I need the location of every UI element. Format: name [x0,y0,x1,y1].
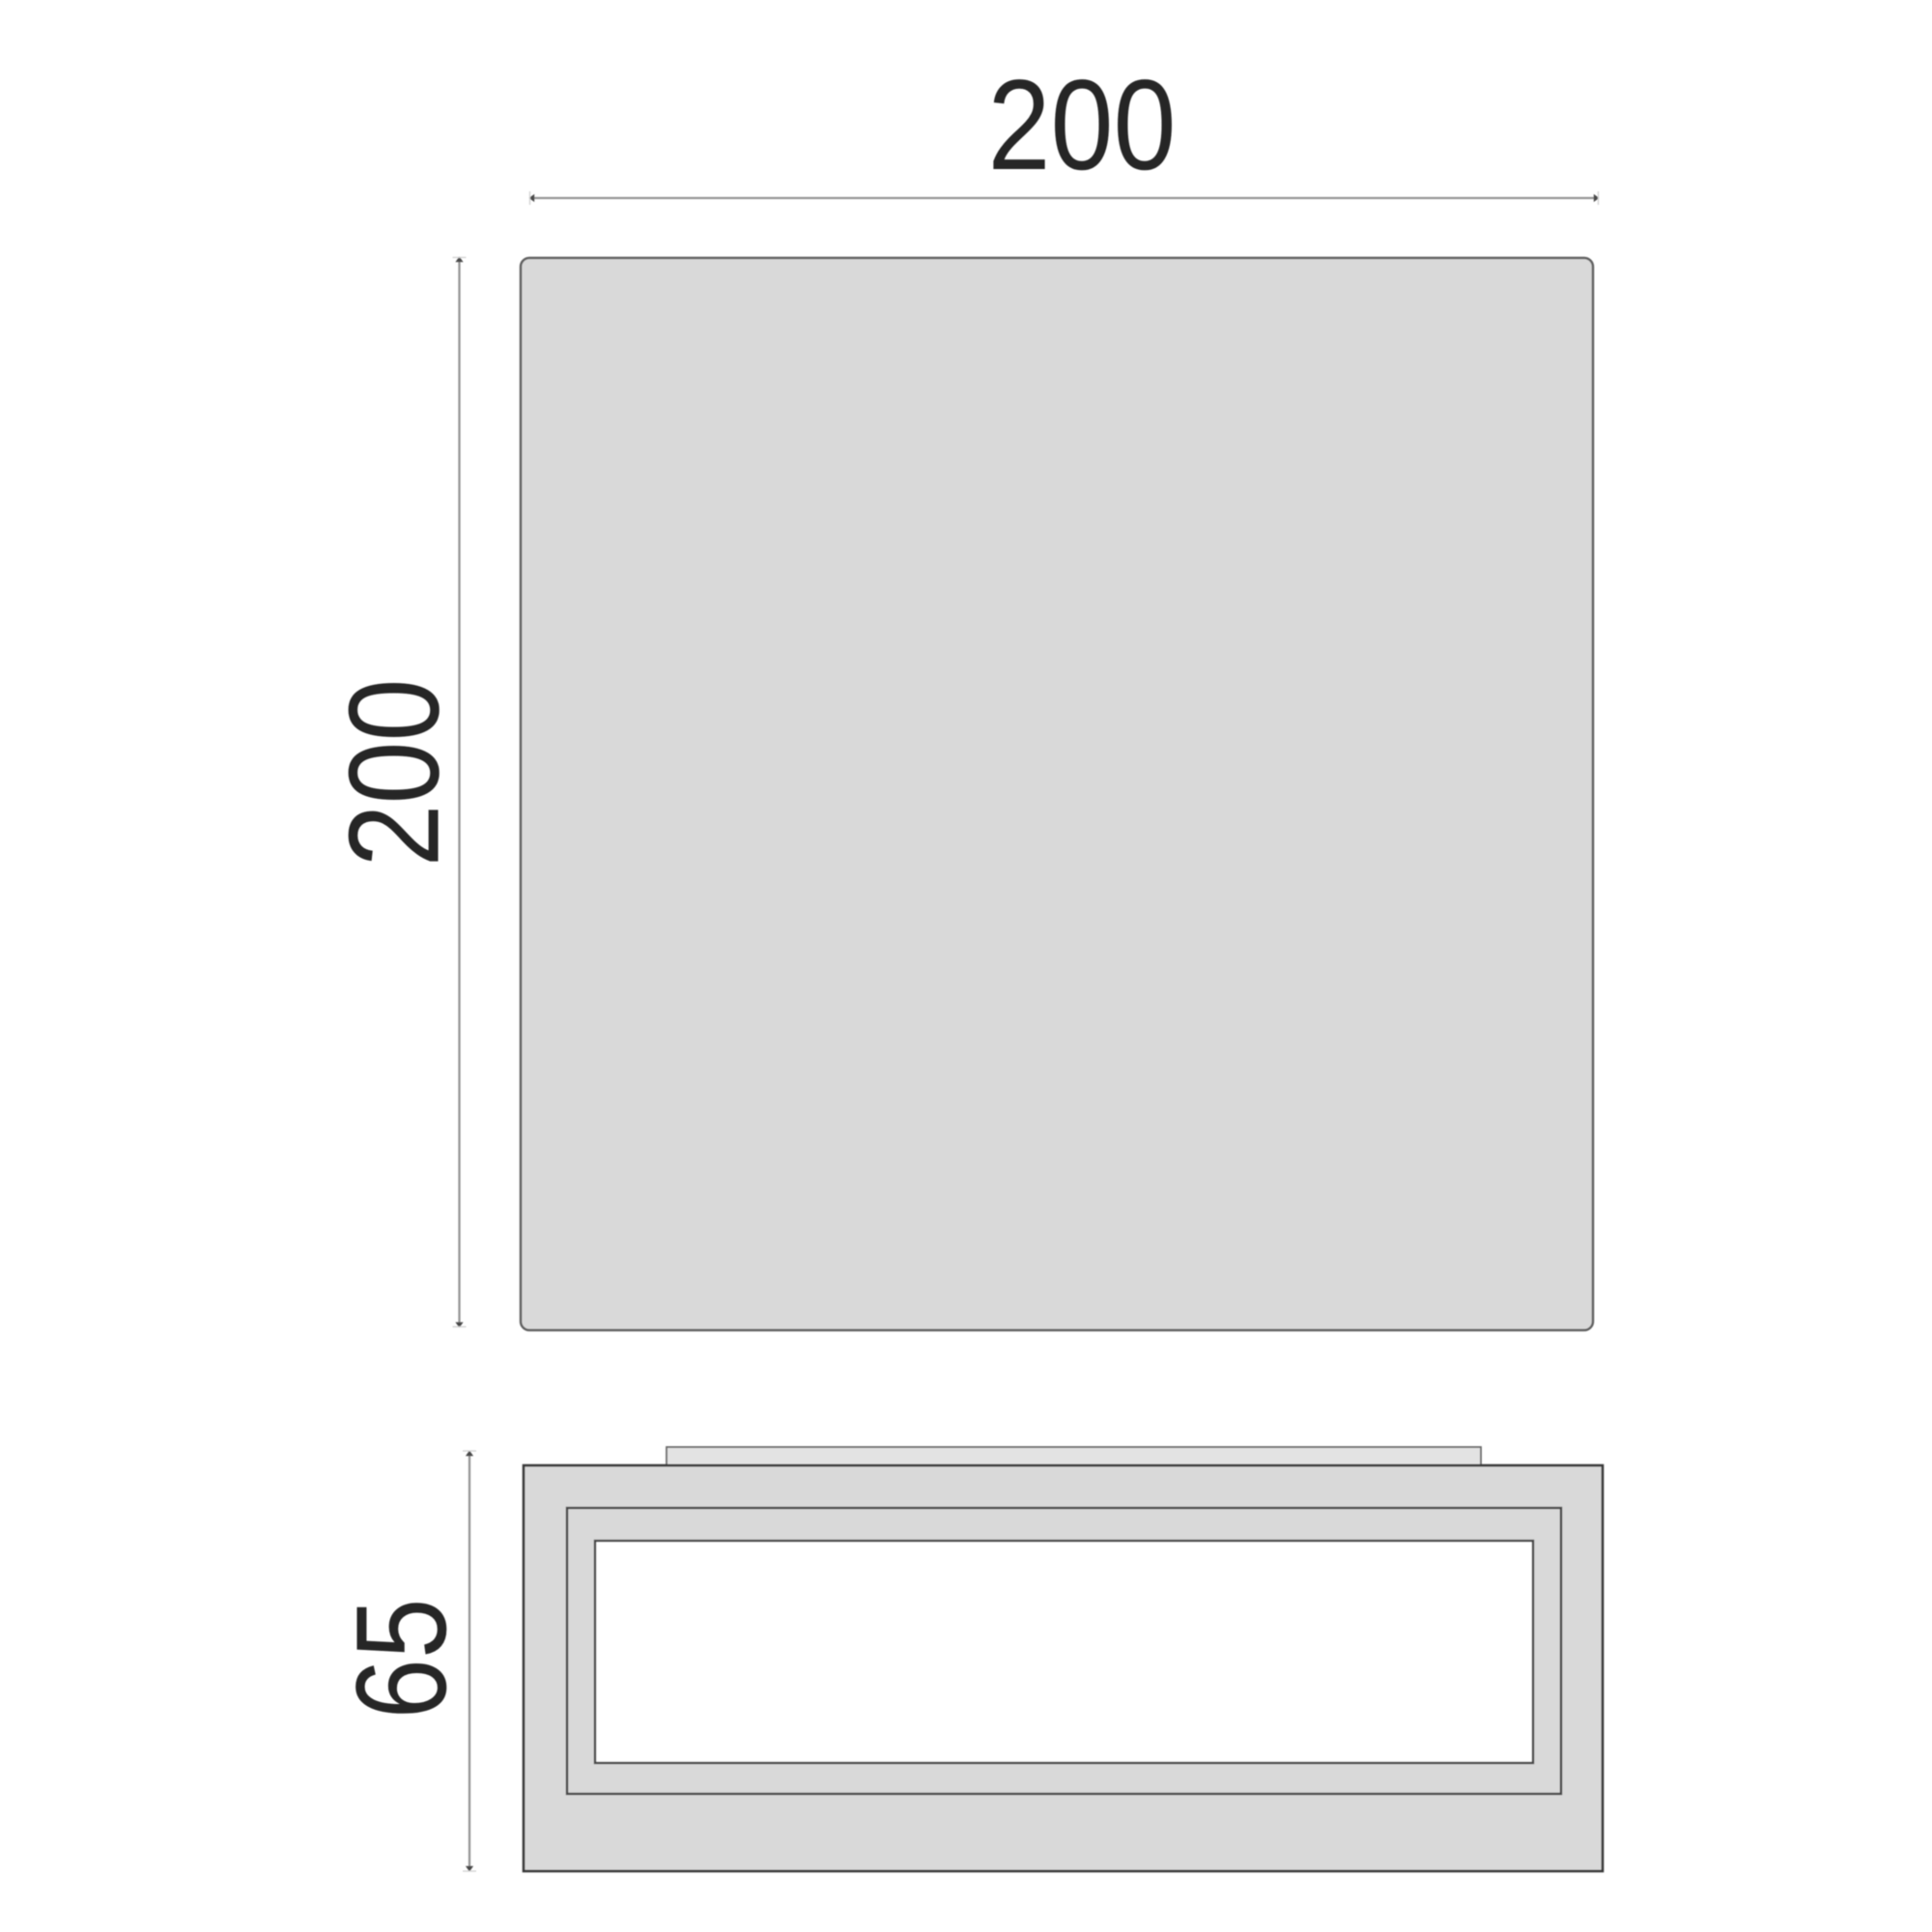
svg-text:65: 65 [330,1599,473,1719]
svg-text:200: 200 [324,679,467,867]
svg-text:200: 200 [988,54,1177,197]
